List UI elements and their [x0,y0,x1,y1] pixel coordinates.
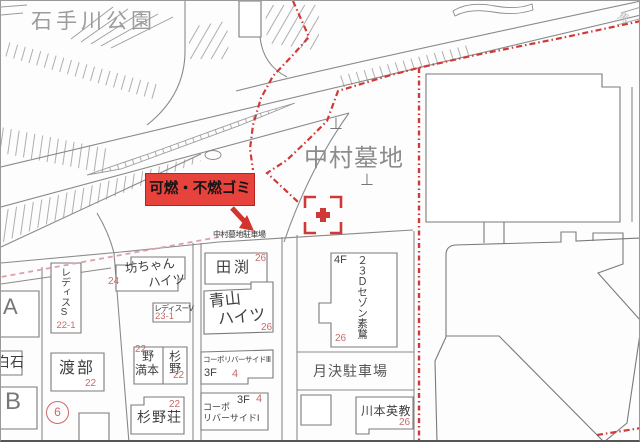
building-corpo3-label: コーポリバーサイドⅢ [203,356,271,364]
plot-number: 26 [335,334,346,345]
plot-number: 4 [256,394,262,406]
park-label: 石手川公園 [31,11,156,33]
scanned-city-map: 石手川公園 中村墓地 ⊥ ⊥ 中村墓地駐車場 月決駐車場 馬 可燃・不燃ゴミ 6… [0,0,640,442]
building-corpo1-floor: 3F [237,395,250,407]
building-saison-floor: 4F [334,255,347,267]
grave-symbol: ⊥ [329,117,343,134]
building-kawamoto-label: 川本英教 [361,405,411,418]
plot-number: 26 [255,254,266,265]
plot-number: 26 [399,418,410,429]
target-bracket-marker [305,197,341,233]
building-suginoso-label: 杉野荘 [137,410,182,425]
plot-number: 22-1 [51,321,81,331]
building-watanabe-label: 渡部 [59,361,95,378]
pink-dashed-street [1,237,219,277]
building-tabuchi-label: 田渕 [216,260,252,276]
building-corpo3-floor: 3F [204,368,217,380]
red-route-corner [597,428,640,435]
plot-number: 24 [108,277,119,288]
building-a-label: A [3,295,18,318]
building-saison-label: ２３Ｄセゾン素鵞 [356,255,367,345]
building-shiraishi-label: 白石 [0,355,24,370]
plot-number: 22 [135,345,146,356]
plot-number: 22 [173,371,184,382]
plot-number: 4 [232,369,238,381]
building-square-small [301,395,331,425]
plot-number: 23-1 [155,312,174,322]
monthly-parking-label: 月決駐車場 [313,364,388,379]
building-small-left [79,413,109,441]
building-corpo1-line2: リバーサイドⅠ [203,414,259,423]
building-ladies-s-label: レディスS [58,267,69,323]
cemetery-label: 中村墓地 [304,146,404,171]
building-corpo1-line1: コーポ [203,403,230,412]
plot-number-circle: 6 [46,401,69,424]
plot-number: 22 [85,379,96,390]
plot-number: 26 [261,323,272,334]
plot-number: 22 [169,400,180,411]
red-arrow [232,208,254,231]
grave-symbol: ⊥ [360,173,374,190]
building-strip-top-center [239,1,261,37]
building-nomitsu-line2: 満本 [135,364,159,377]
building-b-label: B [5,389,21,414]
garbage-point-label: 可燃・不燃ゴミ [145,173,255,206]
building-large-northeast [426,74,620,222]
cemetery-parking-label: 中村墓地駐車場 [213,231,266,239]
